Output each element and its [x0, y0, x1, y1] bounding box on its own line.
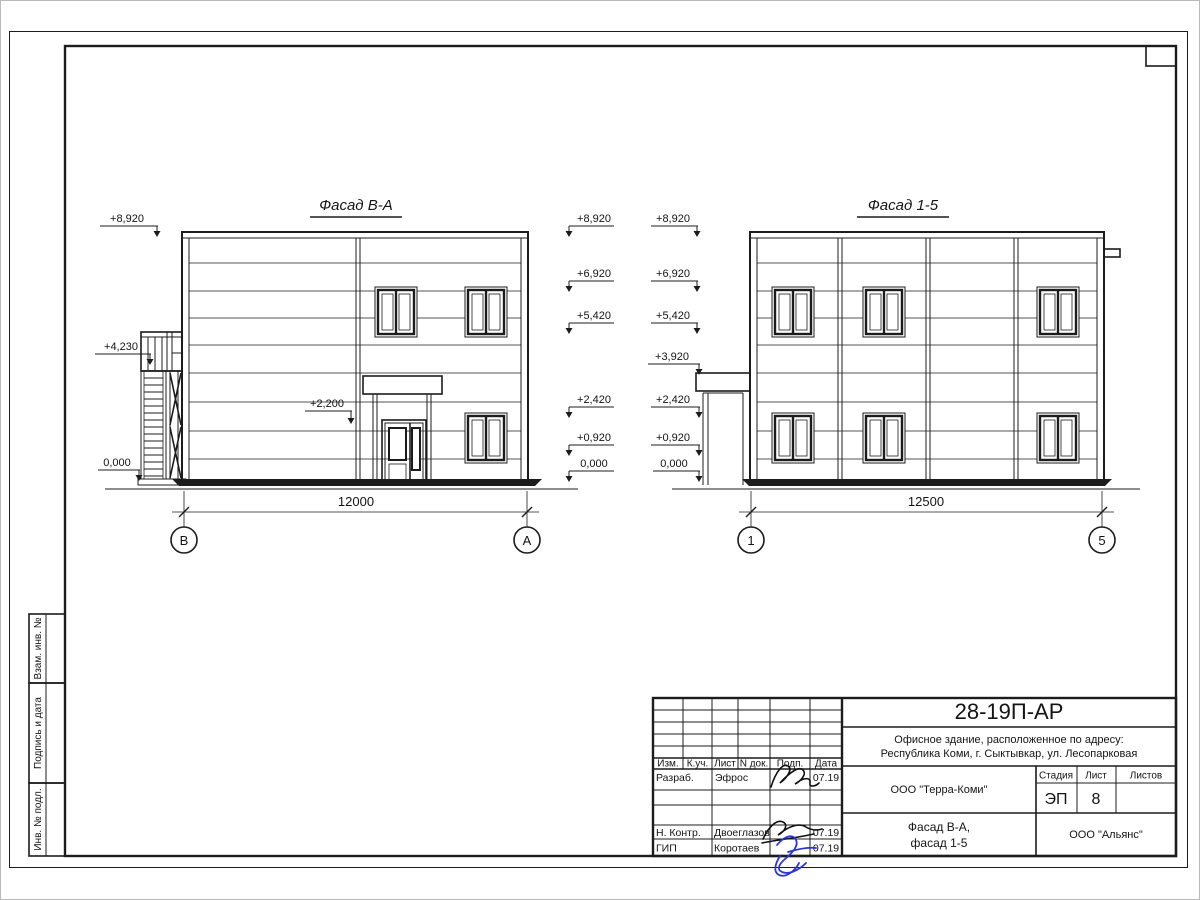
dimension-value: 12000 — [338, 494, 374, 509]
drawing-sheet: Взам. инв. № Подпись и дата Инв. № подл.… — [0, 0, 1200, 900]
tb-drawing-title-1: Фасад В-А, — [908, 820, 970, 834]
side-stamp-podpis: Подпись и дата — [33, 697, 44, 769]
dimension-value: 12500 — [908, 494, 944, 509]
tb-organization: ООО "Терра-Коми" — [890, 784, 987, 796]
tb-sheet-label: Лист — [1085, 771, 1107, 782]
tb-date-razrab: 07.19 — [813, 772, 839, 784]
window — [772, 413, 814, 463]
window — [465, 287, 507, 337]
tb-header-list: Лист — [714, 759, 736, 770]
facade-drawing-canvas: Взам. инв. № Подпись и дата Инв. № подл.… — [0, 0, 1200, 900]
tb-header-ndok: N док. — [740, 759, 769, 770]
svg-text:0,000: 0,000 — [660, 458, 688, 470]
facade-b-a-title: Фасад В-А — [319, 197, 393, 214]
svg-text:+5,420: +5,420 — [656, 310, 690, 322]
svg-text:0,000: 0,000 — [580, 458, 608, 470]
tb-role-razrab: Разраб. — [656, 772, 694, 784]
tb-doc-number: 28-19П-АР — [955, 699, 1064, 724]
svg-text:+8,920: +8,920 — [110, 213, 144, 225]
tb-description-2: Республика Коми, г. Сыктывкар, ул. Лесоп… — [881, 748, 1138, 760]
tb-name-nkontr: Двоеглазов — [714, 827, 770, 839]
svg-text:+6,920: +6,920 — [656, 268, 690, 280]
tb-sheets-label: Листов — [1130, 771, 1163, 782]
side-stamp-vzam: Взам. инв. № — [33, 617, 44, 679]
svg-text:+2,420: +2,420 — [656, 394, 690, 406]
axis-label-a: А — [523, 533, 532, 548]
axis-label-5: 5 — [1098, 533, 1105, 548]
svg-text:+3,920: +3,920 — [655, 351, 689, 363]
facade-1-5-title: Фасад 1-5 — [868, 197, 939, 214]
svg-text:+0,920: +0,920 — [656, 432, 690, 444]
tb-drawing-title-2: фасад 1-5 — [911, 836, 968, 850]
tb-date-gip: 07.19 — [813, 843, 839, 855]
svg-text:+6,920: +6,920 — [577, 268, 611, 280]
window — [375, 287, 417, 337]
tb-header-izm: Изм. — [657, 759, 678, 770]
axis-label-1: 1 — [747, 533, 754, 548]
tb-header-data: Дата — [815, 759, 838, 770]
window — [465, 413, 507, 463]
tb-description-1: Офисное здание, расположенное по адресу: — [894, 734, 1123, 746]
svg-text:+8,920: +8,920 — [577, 213, 611, 225]
tb-date-nkontr: 07.19 — [813, 827, 839, 839]
window — [772, 287, 814, 337]
window — [863, 287, 905, 337]
svg-text:+2,420: +2,420 — [577, 394, 611, 406]
tb-header-kuch: К.уч. — [687, 759, 709, 770]
svg-text:+5,420: +5,420 — [577, 310, 611, 322]
svg-text:0,000: 0,000 — [103, 457, 131, 469]
window — [863, 413, 905, 463]
window — [1037, 287, 1079, 337]
svg-text:+8,920: +8,920 — [656, 213, 690, 225]
svg-text:+4,230: +4,230 — [104, 341, 138, 353]
tb-role-nkontr: Н. Контр. — [656, 827, 701, 839]
svg-text:+0,920: +0,920 — [577, 432, 611, 444]
tb-sheet-value: 8 — [1092, 791, 1101, 808]
tb-contractor: ООО "Альянс" — [1069, 829, 1143, 841]
tb-name-gip: Коротаев — [714, 843, 760, 855]
tb-stage-label: Стадия — [1039, 771, 1073, 782]
window — [1037, 413, 1079, 463]
tb-name-razrab: Эфрос — [715, 772, 748, 784]
svg-text:+2,200: +2,200 — [310, 398, 344, 410]
tb-stage-value: ЭП — [1045, 791, 1068, 808]
side-stamp-inv: Инв. № подл. — [33, 788, 44, 850]
axis-label-v: В — [180, 533, 189, 548]
tb-role-gip: ГИП — [656, 843, 677, 855]
